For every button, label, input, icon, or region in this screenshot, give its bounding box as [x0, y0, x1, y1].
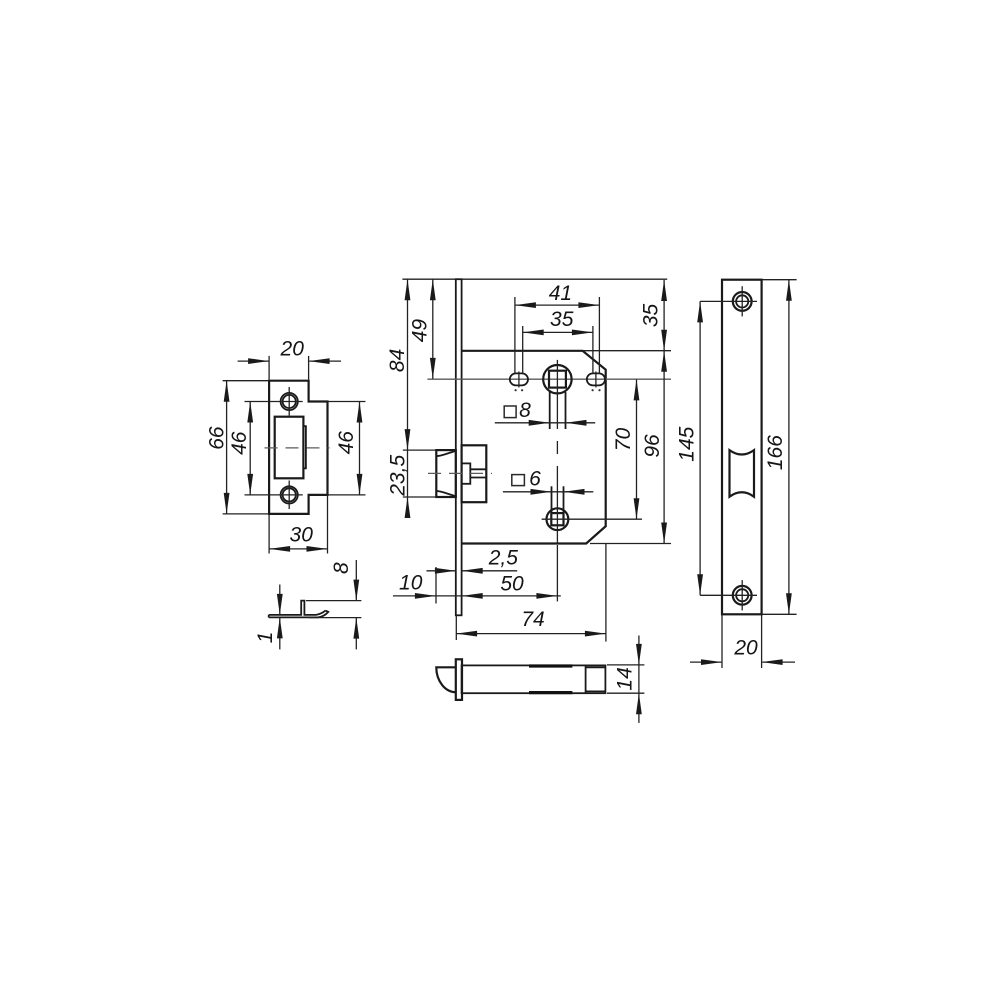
- svg-text:8: 8: [330, 562, 353, 574]
- svg-text:2,5: 2,5: [488, 546, 519, 569]
- svg-text:70: 70: [612, 428, 635, 452]
- svg-text:66: 66: [205, 426, 228, 450]
- svg-text:166: 166: [764, 435, 787, 470]
- svg-text:49: 49: [408, 319, 431, 343]
- svg-text:74: 74: [521, 608, 544, 631]
- svg-text:145: 145: [676, 426, 699, 461]
- svg-text:10: 10: [399, 571, 423, 594]
- svg-text:46: 46: [228, 431, 251, 455]
- svg-text:35: 35: [640, 304, 663, 328]
- svg-text:46: 46: [335, 431, 358, 455]
- svg-text:23,5: 23,5: [387, 455, 410, 497]
- svg-text:14: 14: [614, 667, 637, 690]
- svg-text:35: 35: [550, 308, 574, 331]
- svg-text:1: 1: [254, 632, 277, 644]
- svg-text:96: 96: [641, 434, 664, 458]
- svg-text:84: 84: [386, 349, 409, 372]
- svg-text:20: 20: [280, 338, 305, 361]
- svg-text:6: 6: [529, 468, 541, 491]
- svg-text:8: 8: [519, 399, 531, 422]
- svg-text:50: 50: [500, 573, 524, 596]
- svg-text:30: 30: [290, 523, 314, 546]
- svg-text:20: 20: [733, 637, 758, 660]
- svg-text:41: 41: [549, 282, 572, 305]
